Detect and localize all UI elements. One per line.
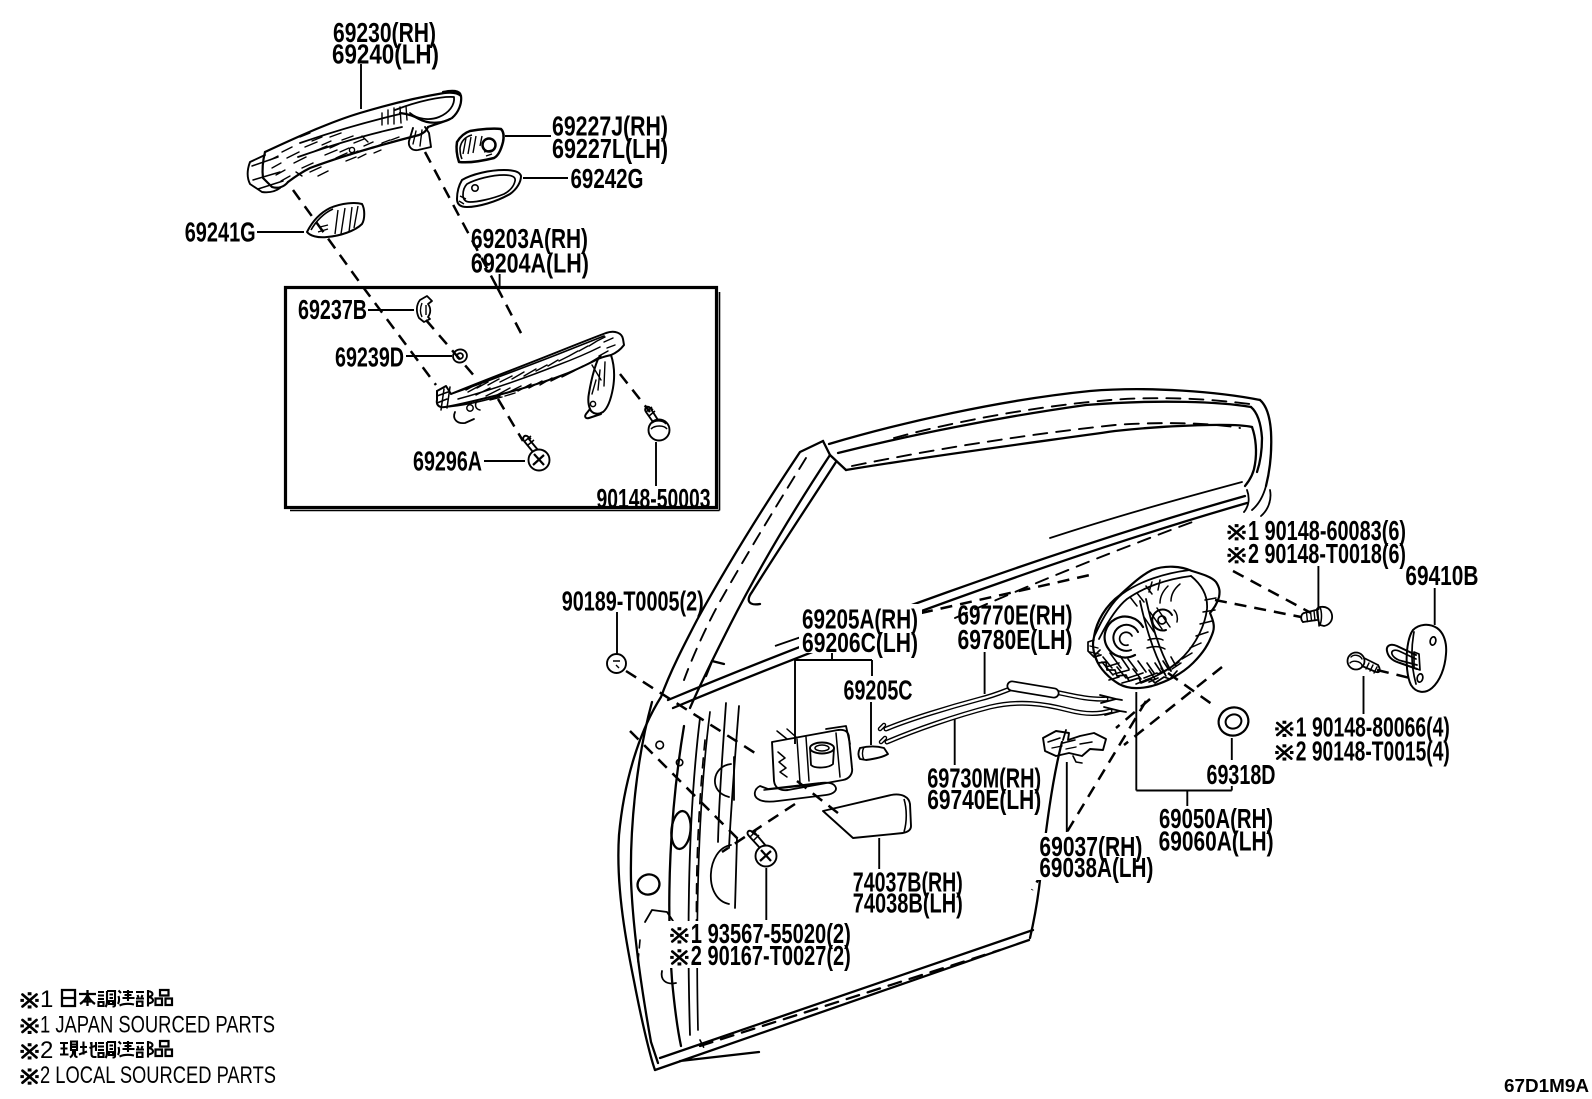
svg-text:69780E(LH): 69780E(LH) bbox=[958, 624, 1073, 655]
svg-text:69318D: 69318D bbox=[1207, 759, 1276, 790]
svg-text:69038A(LH): 69038A(LH) bbox=[1039, 852, 1153, 883]
svg-text:1 JAPAN SOURCED PARTS: 1 JAPAN SOURCED PARTS bbox=[40, 1012, 275, 1039]
svg-text:2 90167-T0027(2): 2 90167-T0027(2) bbox=[691, 940, 851, 971]
svg-text:69240(LH): 69240(LH) bbox=[332, 39, 439, 70]
svg-text:69296A: 69296A bbox=[413, 446, 482, 477]
svg-text:67D1M9A: 67D1M9A bbox=[1504, 1075, 1589, 1096]
svg-text:90189-T0005(2): 90189-T0005(2) bbox=[562, 586, 704, 617]
svg-text:69241G: 69241G bbox=[185, 217, 256, 248]
svg-text:1: 1 bbox=[40, 986, 53, 1013]
svg-text:2 LOCAL SOURCED PARTS: 2 LOCAL SOURCED PARTS bbox=[40, 1062, 276, 1089]
svg-text:69242G: 69242G bbox=[571, 163, 644, 194]
svg-text:2 90148-T0015(4): 2 90148-T0015(4) bbox=[1296, 735, 1450, 766]
svg-text:69060A(LH): 69060A(LH) bbox=[1159, 825, 1274, 856]
svg-text:90148-50003: 90148-50003 bbox=[597, 483, 711, 514]
svg-text:69239D: 69239D bbox=[335, 342, 404, 373]
svg-text:74038B(LH): 74038B(LH) bbox=[853, 887, 963, 918]
svg-text:2: 2 bbox=[40, 1037, 53, 1064]
svg-text:69237B: 69237B bbox=[298, 294, 367, 325]
svg-text:69204A(LH): 69204A(LH) bbox=[471, 248, 589, 279]
svg-text:69740E(LH): 69740E(LH) bbox=[927, 784, 1041, 815]
svg-text:69206C(LH): 69206C(LH) bbox=[802, 627, 918, 658]
svg-text:2 90148-T0018(6): 2 90148-T0018(6) bbox=[1248, 538, 1406, 569]
svg-text:69227L(LH): 69227L(LH) bbox=[552, 133, 668, 164]
svg-text:69410B: 69410B bbox=[1405, 560, 1478, 591]
svg-text:69205C: 69205C bbox=[844, 675, 913, 706]
